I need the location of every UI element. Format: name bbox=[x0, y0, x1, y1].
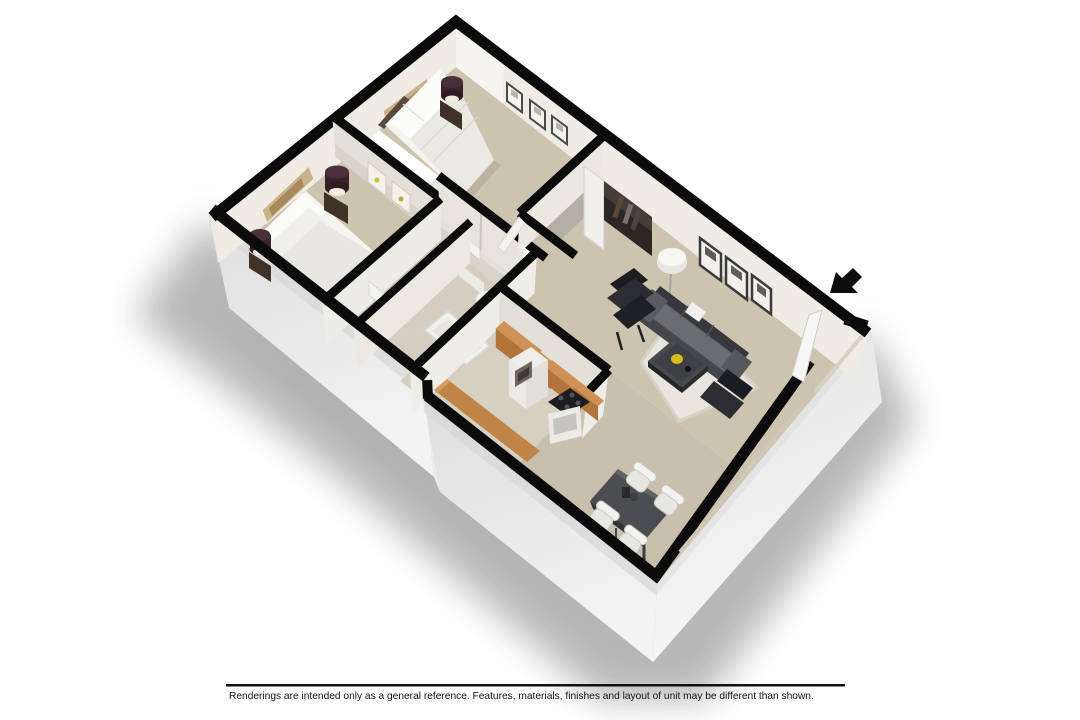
svg-text:Renderings are intended only a: Renderings are intended only as a genera… bbox=[229, 691, 814, 702]
